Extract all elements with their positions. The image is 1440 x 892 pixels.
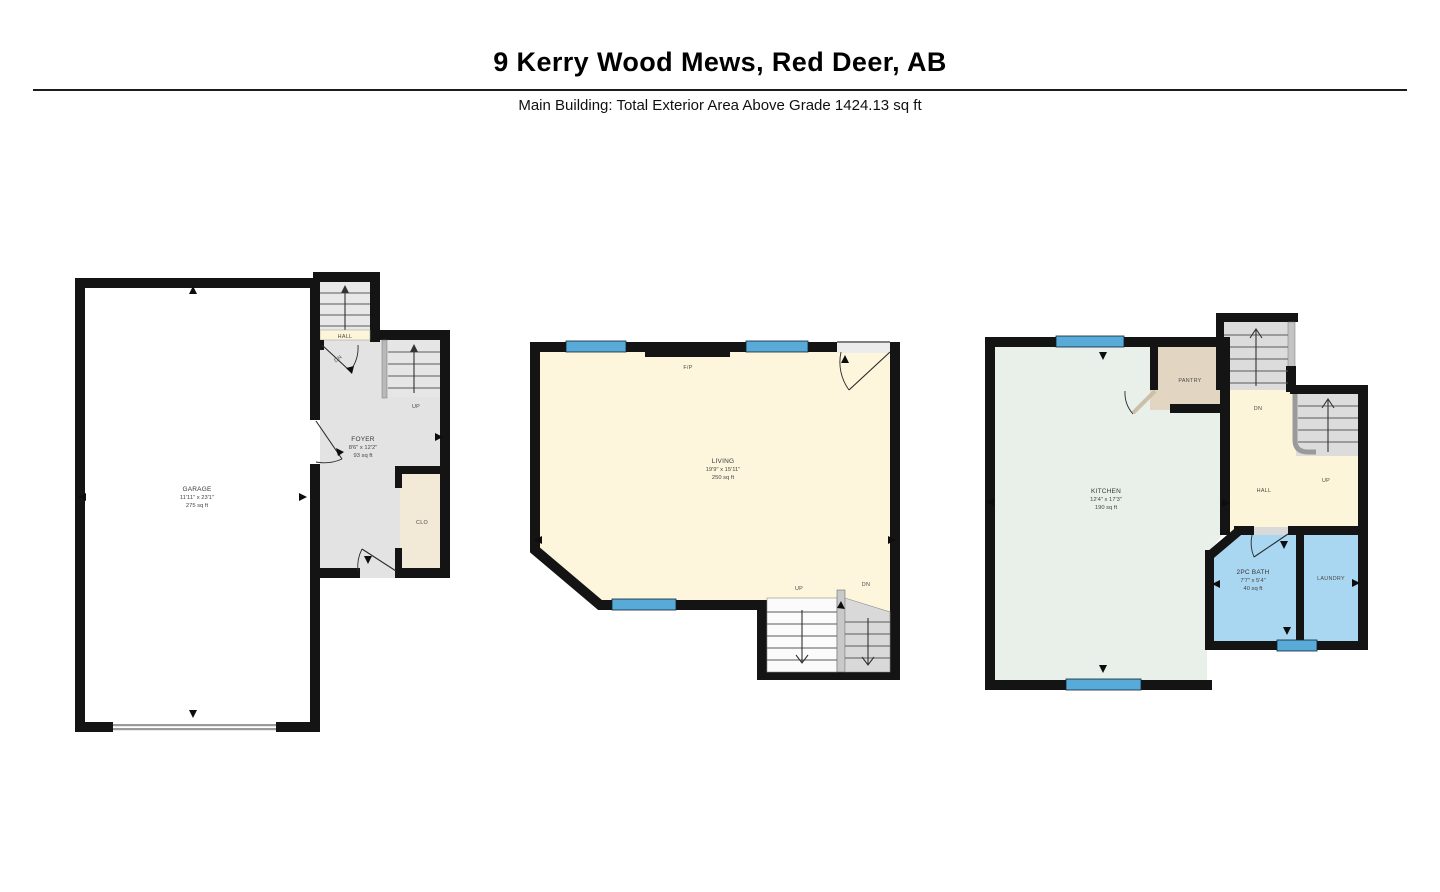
kitchen-dims: 12'4" x 17'3" <box>1090 497 1122 503</box>
bath-area: 40 sq ft <box>1243 586 1262 592</box>
foyer-dims: 8'6" x 12'2" <box>349 445 378 451</box>
fireplace-label: F/P <box>683 365 692 371</box>
foyer-area: 93 sq ft <box>353 453 372 459</box>
plan-garage-foyer: HALL DN <box>75 272 450 732</box>
up-label-right: UP <box>1322 478 1330 484</box>
up-label-middle: UP <box>795 586 803 592</box>
up-label-left: UP <box>412 404 420 410</box>
bath-dims: 7'7" x 5'4" <box>1240 578 1265 584</box>
kitchen-name: KITCHEN <box>1091 488 1121 495</box>
kitchen-window-bottom <box>1066 679 1141 690</box>
hall-label: HALL <box>338 334 353 340</box>
pantry-room <box>1150 342 1225 410</box>
plan-living: F/P UP DN <box>534 341 896 675</box>
plan-kitchen: PANTRY DN UP HALL LAUNDRY KITCHEN 12'4" … <box>985 313 1368 690</box>
kitchen-window-top <box>1056 336 1124 347</box>
bath-name: 2PC BATH <box>1237 569 1270 576</box>
dn-label-right: DN <box>1254 406 1262 412</box>
laundry-window <box>1277 640 1317 651</box>
dn-label-middle: DN <box>862 582 870 588</box>
living-dims: 19'9" x 15'11" <box>706 467 741 473</box>
garage-area: 275 sq ft <box>186 503 209 509</box>
living-window-top-left <box>566 341 626 352</box>
laundry-room <box>1300 530 1360 645</box>
closet-label: CLO <box>416 520 428 526</box>
pantry-label: PANTRY <box>1178 378 1201 384</box>
living-window-top-right <box>746 341 808 352</box>
floorplan-page: 9 Kerry Wood Mews, Red Deer, AB Main Bui… <box>0 0 1440 892</box>
hall-label-right: HALL <box>1257 488 1272 494</box>
living-name: LIVING <box>712 458 735 465</box>
garage-door <box>113 724 276 730</box>
garage-dims: 11'11" x 23'1" <box>180 495 214 501</box>
laundry-label: LAUNDRY <box>1317 576 1345 582</box>
living-window-bottom <box>612 599 676 610</box>
foyer-name: FOYER <box>351 436 374 443</box>
living-area: 250 sq ft <box>712 475 735 481</box>
garage-name: GARAGE <box>182 486 211 493</box>
right-stairs-up <box>1290 385 1368 456</box>
kitchen-area: 190 sq ft <box>1095 505 1118 511</box>
floorplan-canvas: HALL DN <box>0 0 1440 892</box>
